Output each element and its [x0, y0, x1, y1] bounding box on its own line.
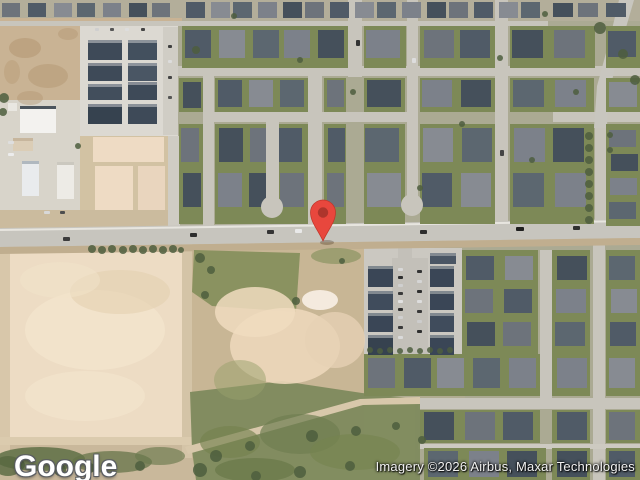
- tree: [585, 144, 593, 152]
- car: [500, 150, 504, 156]
- pink-lot: [95, 166, 133, 213]
- tree: [585, 192, 593, 200]
- terrain-patch: [17, 91, 43, 105]
- building-ridge: [13, 138, 33, 141]
- tree: [192, 46, 200, 54]
- building-ridge: [368, 291, 393, 294]
- tree: [607, 132, 613, 138]
- house-roof: [28, 3, 46, 17]
- tree: [294, 466, 306, 478]
- house-roof: [509, 358, 536, 388]
- house-roof: [466, 256, 494, 280]
- tree: [75, 143, 81, 149]
- car: [168, 76, 172, 79]
- building-ridge: [128, 63, 157, 66]
- terrain-patch: [4, 60, 20, 84]
- terrain-patch: [302, 290, 338, 310]
- tree: [497, 55, 503, 61]
- path-field-south: [0, 437, 192, 445]
- tree: [585, 180, 593, 188]
- terrain-patch: [215, 287, 295, 337]
- car: [8, 141, 14, 144]
- house-roof: [377, 2, 396, 18]
- house-roof: [427, 2, 446, 18]
- tree: [407, 347, 413, 353]
- building-ridge: [430, 291, 454, 294]
- house-roof: [473, 358, 500, 388]
- tree: [585, 168, 593, 176]
- house-roof: [514, 128, 545, 162]
- terrain-patch: [214, 360, 266, 400]
- house-roof: [554, 30, 585, 58]
- building-roof: [57, 162, 74, 199]
- tree: [427, 347, 433, 353]
- house-roof: [305, 2, 324, 18]
- house-roof: [103, 3, 121, 17]
- street: [540, 250, 552, 400]
- building-ridge: [88, 63, 122, 66]
- tree: [447, 347, 453, 353]
- car: [356, 40, 360, 46]
- tree: [585, 132, 593, 140]
- house-roof: [462, 128, 492, 162]
- street: [407, 0, 418, 205]
- tree: [88, 245, 96, 253]
- tree: [607, 147, 613, 153]
- car: [417, 330, 422, 333]
- house-roof: [183, 173, 201, 207]
- tree: [306, 430, 318, 442]
- tree: [159, 246, 167, 254]
- tree: [529, 157, 535, 163]
- car: [398, 268, 403, 271]
- car: [398, 316, 403, 319]
- building-ridge: [430, 335, 454, 338]
- house-roof: [460, 30, 490, 58]
- car: [417, 280, 422, 283]
- tree: [377, 348, 383, 354]
- house-roof: [611, 154, 638, 171]
- house-roof: [423, 128, 453, 162]
- tree: [119, 246, 127, 254]
- map-pin-dot[interactable]: [318, 207, 328, 217]
- house-roof: [330, 2, 349, 18]
- building-ridge: [368, 266, 393, 269]
- building-ridge: [88, 104, 122, 107]
- apartment-parking: [392, 258, 428, 358]
- building-ridge: [368, 313, 393, 316]
- imagery-attribution: Imagery ©2026 Airbus, Maxar Technologies: [376, 459, 635, 474]
- building-ridge: [430, 253, 456, 256]
- house-roof: [606, 3, 626, 17]
- house-roof: [422, 173, 452, 207]
- cul-de-sac: [401, 194, 423, 216]
- house-roof: [553, 128, 584, 162]
- house-roof: [367, 80, 401, 107]
- house-roof: [77, 3, 95, 17]
- car: [60, 211, 65, 214]
- terrain-patch: [305, 312, 365, 368]
- house-roof: [611, 289, 637, 313]
- house-roof: [503, 322, 531, 346]
- house-roof: [258, 2, 277, 18]
- house-roof: [610, 322, 636, 346]
- street: [203, 76, 214, 228]
- car: [412, 58, 416, 63]
- house-roof: [365, 128, 399, 162]
- satellite-imagery: [0, 0, 640, 480]
- tree: [350, 89, 356, 95]
- tree: [542, 11, 548, 17]
- house-roof: [499, 2, 518, 18]
- house-roof: [557, 256, 587, 280]
- house-roof: [555, 173, 586, 207]
- car: [573, 226, 580, 230]
- building-ridge: [128, 40, 157, 43]
- tree: [351, 426, 361, 436]
- house-roof: [368, 358, 395, 388]
- house-roof: [129, 3, 147, 17]
- street: [495, 0, 508, 228]
- house-roof: [327, 80, 344, 107]
- building-ridge: [430, 313, 454, 316]
- terrain-patch: [311, 248, 361, 264]
- building-ridge: [128, 82, 157, 85]
- house-roof: [609, 202, 636, 219]
- tree: [231, 13, 237, 19]
- roadside-northwest: [0, 210, 178, 228]
- alley: [0, 21, 548, 26]
- car: [44, 211, 50, 214]
- house-roof: [474, 2, 493, 18]
- house-roof: [404, 358, 431, 388]
- house-roof: [280, 173, 304, 207]
- house-roof: [557, 358, 587, 388]
- tree: [149, 245, 157, 253]
- terrain-patch: [9, 38, 41, 58]
- building-roof: [22, 161, 39, 196]
- car: [398, 308, 403, 311]
- tree: [345, 461, 355, 471]
- house-roof: [422, 80, 452, 107]
- tree: [169, 245, 177, 253]
- car: [398, 292, 403, 295]
- house-roof: [280, 80, 304, 107]
- car: [141, 28, 145, 31]
- car: [295, 229, 302, 233]
- building-ridge: [88, 40, 122, 43]
- tree: [178, 247, 184, 253]
- car: [267, 230, 274, 234]
- street: [595, 118, 606, 228]
- car: [516, 227, 524, 231]
- house-roof: [219, 128, 243, 162]
- cul-de-sac: [261, 196, 283, 218]
- tree: [207, 266, 215, 274]
- tree: [297, 57, 303, 63]
- tree: [573, 89, 579, 95]
- street: [418, 398, 640, 409]
- house-roof: [461, 173, 491, 207]
- terrain-patch: [25, 371, 145, 421]
- house-roof: [578, 3, 598, 17]
- house-roof: [219, 30, 245, 58]
- car: [168, 45, 172, 48]
- house-roof: [402, 2, 421, 18]
- house-roof: [181, 128, 199, 162]
- tree: [437, 348, 443, 354]
- house-roof: [367, 173, 401, 207]
- building-roof: [368, 266, 393, 287]
- house-roof: [609, 358, 635, 388]
- house-roof: [253, 30, 279, 58]
- house-roof: [557, 412, 587, 440]
- car: [190, 233, 197, 237]
- car: [398, 336, 403, 339]
- house-roof: [555, 322, 585, 346]
- car: [398, 326, 403, 329]
- house-roof: [610, 178, 637, 195]
- car: [8, 153, 14, 156]
- house-roof: [461, 80, 491, 107]
- field-edge-west: [0, 248, 10, 460]
- house-roof: [318, 30, 344, 58]
- house-roof: [555, 80, 586, 107]
- tree: [397, 348, 403, 354]
- house-roof: [2, 3, 20, 17]
- house-roof: [437, 358, 464, 388]
- house-roof: [328, 128, 345, 162]
- car: [63, 237, 70, 241]
- tree: [129, 245, 137, 253]
- pin-shadow: [320, 240, 334, 245]
- car: [95, 28, 99, 31]
- tree: [585, 156, 593, 164]
- car: [417, 300, 422, 303]
- car: [110, 28, 114, 31]
- street: [168, 136, 180, 228]
- building-roof: [430, 266, 454, 287]
- house-roof: [218, 173, 242, 207]
- car: [417, 310, 422, 313]
- tree: [195, 253, 205, 263]
- house-roof: [283, 2, 302, 18]
- tree: [418, 436, 426, 444]
- tree: [339, 258, 345, 264]
- car: [168, 96, 172, 99]
- terrain-patch: [58, 28, 78, 40]
- tree: [210, 450, 222, 462]
- car: [420, 230, 427, 234]
- terrain-patch: [20, 262, 100, 298]
- car: [398, 284, 403, 287]
- house-roof: [284, 30, 310, 58]
- house-roof: [609, 412, 635, 440]
- building-ridge: [88, 84, 122, 87]
- map-viewport[interactable]: Google Imagery ©2026 Airbus, Maxar Techn…: [0, 0, 640, 480]
- house-roof: [249, 80, 273, 107]
- parking-strip: [163, 27, 180, 135]
- house-roof: [609, 130, 636, 147]
- tree: [292, 297, 300, 305]
- house-roof: [556, 289, 586, 313]
- car: [398, 276, 403, 279]
- car: [168, 60, 172, 63]
- house-roof: [465, 289, 493, 313]
- house-roof: [467, 322, 495, 346]
- building-ridge: [430, 266, 454, 269]
- house-roof: [218, 80, 242, 107]
- tree: [585, 204, 593, 212]
- house-roof: [465, 412, 495, 440]
- tree: [108, 245, 116, 253]
- path-vertical: [182, 244, 192, 458]
- building-ridge: [57, 162, 74, 165]
- house-roof: [424, 30, 454, 58]
- tree: [367, 347, 373, 353]
- pink-lot: [93, 137, 164, 162]
- tree: [618, 49, 628, 59]
- tree: [193, 463, 207, 477]
- building-ridge: [20, 106, 56, 109]
- car: [398, 300, 403, 303]
- tree: [98, 246, 106, 254]
- house-roof: [424, 412, 454, 440]
- pink-lot: [138, 166, 165, 213]
- house-roof: [355, 2, 374, 18]
- house-roof: [183, 82, 201, 108]
- tree: [585, 216, 593, 224]
- house-roof: [513, 80, 544, 107]
- house-roof: [278, 128, 302, 162]
- google-logo[interactable]: Google: [14, 450, 117, 480]
- car: [417, 270, 422, 273]
- tree: [139, 246, 147, 254]
- tree: [459, 121, 465, 127]
- building-roof: [8, 103, 17, 111]
- tree: [594, 22, 606, 34]
- house-roof: [513, 173, 544, 207]
- building-roof: [20, 106, 56, 133]
- building-ridge: [368, 335, 393, 338]
- car: [417, 290, 422, 293]
- tree: [417, 348, 423, 354]
- house-roof: [553, 3, 573, 17]
- house-roof: [185, 30, 211, 58]
- tree: [630, 75, 640, 85]
- tree: [417, 185, 423, 191]
- house-roof: [503, 412, 533, 440]
- house-roof: [211, 2, 230, 18]
- building-ridge: [128, 104, 157, 107]
- house-roof: [521, 2, 540, 18]
- house-roof: [186, 2, 205, 18]
- house-roof: [512, 30, 543, 58]
- tree: [135, 461, 145, 471]
- tree: [392, 422, 400, 430]
- tree: [387, 347, 393, 353]
- house-roof: [366, 30, 400, 58]
- house-roof: [152, 3, 170, 17]
- car: [125, 28, 129, 31]
- house-roof: [609, 256, 635, 280]
- house-roof: [505, 256, 533, 280]
- house-roof: [54, 3, 72, 17]
- building-ridge: [22, 161, 39, 164]
- tree: [245, 441, 255, 451]
- car: [417, 320, 422, 323]
- tree: [201, 291, 209, 299]
- house-roof: [449, 2, 468, 18]
- house-roof: [609, 82, 637, 107]
- terrain-patch: [28, 64, 68, 88]
- house-roof: [504, 289, 532, 313]
